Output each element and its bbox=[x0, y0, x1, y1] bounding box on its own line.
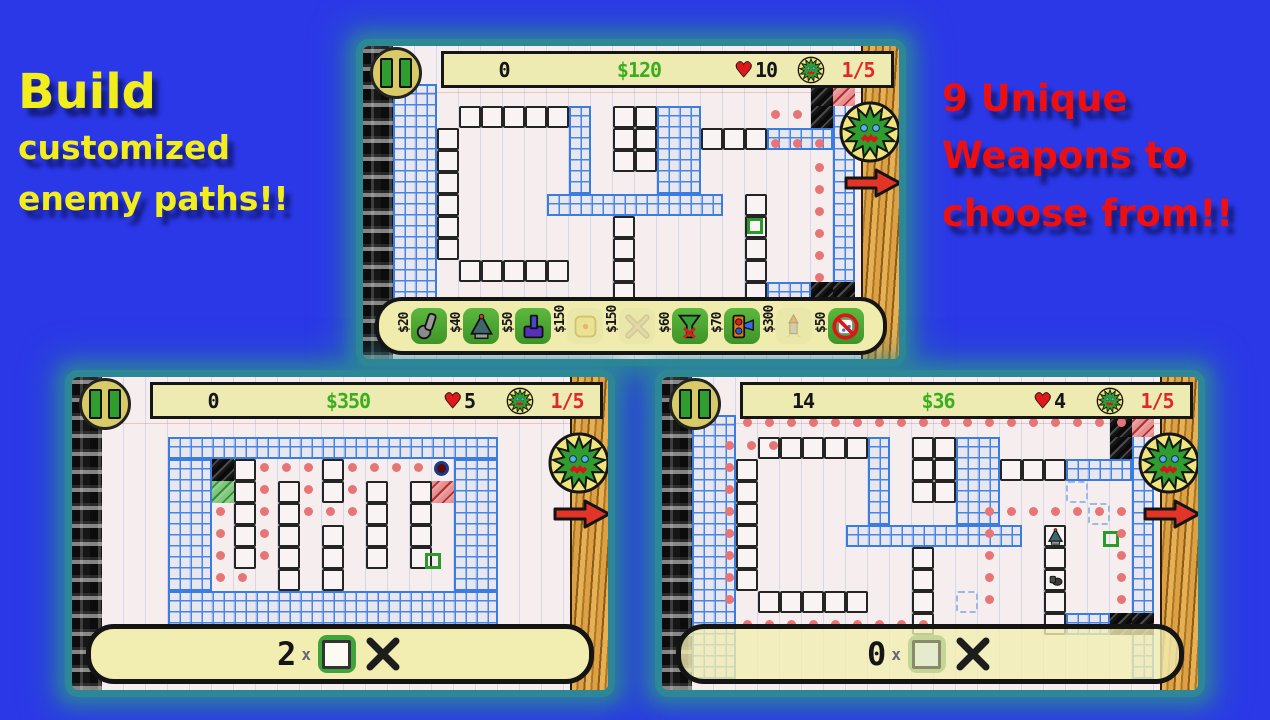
wall-block-icon bbox=[322, 640, 351, 669]
hud-bar: 14 $36 ♥ 4 1/5 bbox=[740, 382, 1193, 419]
weapon-price: $20 bbox=[397, 320, 412, 333]
enemy-path-dot bbox=[963, 418, 972, 427]
build-grid[interactable] bbox=[393, 84, 863, 303]
cancel-button[interactable] bbox=[363, 634, 403, 674]
enemy-path-dot bbox=[985, 595, 994, 604]
money-value: $350 bbox=[273, 389, 423, 413]
spawn-hatch-cell bbox=[212, 459, 234, 481]
signal-weapon-icon bbox=[724, 308, 760, 344]
enemy-path-dot bbox=[793, 110, 802, 119]
weapon-price: $150 bbox=[605, 320, 620, 333]
pause-bar-icon bbox=[108, 389, 121, 419]
spawn-arrow-icon bbox=[843, 166, 899, 200]
enemy-path-dot bbox=[787, 418, 796, 427]
score-value: 14 bbox=[743, 389, 863, 413]
wall-cell bbox=[613, 238, 635, 260]
enemy-path-dot bbox=[1029, 507, 1038, 516]
wall-cell bbox=[234, 481, 256, 503]
wall-cell bbox=[322, 547, 344, 569]
enemy-path-dot bbox=[1095, 418, 1104, 427]
money-value: $36 bbox=[863, 389, 1013, 413]
virus-icon bbox=[506, 387, 534, 415]
wall-cell bbox=[736, 547, 758, 569]
wall-cell bbox=[701, 128, 723, 150]
wall-cell bbox=[234, 459, 256, 481]
wall-cell bbox=[723, 128, 745, 150]
lives-value: 10 bbox=[755, 58, 797, 82]
enemy-path-dot bbox=[1051, 418, 1060, 427]
game-screenshot-wave-running: 14 $36 ♥ 4 1/5 0 x bbox=[662, 377, 1198, 690]
wall-cell bbox=[802, 437, 824, 459]
weapon-price: $150 bbox=[553, 320, 568, 333]
enemy-path-dot bbox=[809, 418, 818, 427]
promo-left-line1: Build bbox=[18, 62, 289, 122]
enemy-path-dot bbox=[348, 485, 357, 494]
spawn-hatch-cell bbox=[811, 106, 833, 128]
wall-cell bbox=[322, 525, 344, 547]
weapon-price: $50 bbox=[814, 320, 829, 333]
wall-cell bbox=[613, 128, 635, 150]
pause-bar-icon bbox=[399, 58, 412, 88]
wall-cell bbox=[234, 525, 256, 547]
heart-icon: ♥ bbox=[446, 389, 459, 413]
buildable-grid bbox=[1066, 459, 1132, 481]
cone-weapon-icon bbox=[463, 308, 499, 344]
enemy-path-dot bbox=[216, 507, 225, 516]
buildable-grid bbox=[393, 84, 437, 303]
wall-cell bbox=[322, 569, 344, 591]
wall-cell bbox=[234, 547, 256, 569]
weapon-slot-6[interactable]: $60 bbox=[659, 308, 708, 344]
wall-cell bbox=[278, 481, 300, 503]
enemy-path-dot bbox=[238, 573, 247, 582]
game-screenshot-build-mode: 0 $120 ♥ 10 1/5 $20$40$50$150$150$60$70$… bbox=[363, 46, 899, 359]
enemy-path-dot bbox=[260, 551, 269, 560]
enemy-path-dot bbox=[985, 529, 994, 538]
weapon-slot-2[interactable]: $40 bbox=[450, 308, 499, 344]
wall-cell bbox=[635, 106, 657, 128]
wall-cell bbox=[366, 547, 388, 569]
spawn-arrow-icon bbox=[552, 497, 608, 531]
wall-cell bbox=[613, 216, 635, 238]
wall-cell bbox=[934, 459, 956, 481]
wall-cell bbox=[322, 481, 344, 503]
virus-icon bbox=[1096, 387, 1124, 415]
enemy-path-dot bbox=[1117, 507, 1126, 516]
enemy-path-dot bbox=[282, 463, 291, 472]
wall-cell bbox=[736, 569, 758, 591]
enemy-path-dot bbox=[370, 463, 379, 472]
wall-cell bbox=[278, 503, 300, 525]
block-count-bar: 0 x bbox=[676, 624, 1184, 684]
wall-cell bbox=[736, 525, 758, 547]
enemy-path-dot bbox=[815, 273, 824, 282]
enemy-path-dot bbox=[260, 529, 269, 538]
spawn-arrow-icon bbox=[1142, 497, 1198, 531]
enemy-path-dot bbox=[216, 573, 225, 582]
wall-cell bbox=[745, 128, 767, 150]
buildable-grid bbox=[846, 525, 1022, 547]
wall-cell bbox=[1044, 591, 1066, 613]
wall-cell bbox=[547, 260, 569, 282]
wall-cell bbox=[780, 437, 802, 459]
weapon-price: $70 bbox=[710, 320, 725, 333]
weapons-toolbar: $20$40$50$150$150$60$70$300$50 bbox=[375, 297, 887, 355]
enemy-path-dot bbox=[831, 418, 840, 427]
hud-bar: 0 $350 ♥ 5 1/5 bbox=[150, 382, 603, 419]
enemy-path-dot bbox=[326, 507, 335, 516]
funnel-weapon-icon bbox=[672, 308, 708, 344]
enemy-path-dot bbox=[815, 229, 824, 238]
enemy-path-dot bbox=[897, 418, 906, 427]
wall-cell bbox=[366, 481, 388, 503]
wall-cell bbox=[278, 569, 300, 591]
enemy-path-dot bbox=[1117, 529, 1126, 538]
wall-cell bbox=[802, 591, 824, 613]
enemy-path-dot bbox=[747, 441, 756, 450]
enemy-path-dot bbox=[853, 418, 862, 427]
nosign-weapon-icon bbox=[828, 308, 864, 344]
wall-cell bbox=[525, 260, 547, 282]
buildable-grid bbox=[657, 106, 701, 194]
wall-cell bbox=[410, 481, 432, 503]
wall-cell bbox=[912, 437, 934, 459]
weapon-slot-5[interactable]: $150 bbox=[606, 308, 655, 344]
heart-icon: ♥ bbox=[1036, 389, 1049, 413]
wall-cell bbox=[613, 150, 635, 172]
enemy-virus-badge bbox=[547, 431, 608, 495]
virus-icon bbox=[797, 56, 825, 84]
wall-cell bbox=[736, 503, 758, 525]
wall-cell bbox=[503, 260, 525, 282]
wall-cell bbox=[912, 459, 934, 481]
enemy-path-dot bbox=[1095, 507, 1104, 516]
heart-icon: ♥ bbox=[737, 58, 750, 82]
wall-cell bbox=[322, 459, 344, 481]
pause-bar-icon bbox=[698, 389, 711, 419]
lives-value: 5 bbox=[464, 389, 506, 413]
enemy-path-dot bbox=[985, 507, 994, 516]
enemy-path-dot bbox=[765, 418, 774, 427]
wall-cell bbox=[1044, 459, 1066, 481]
wall-cell bbox=[366, 525, 388, 547]
buildable-grid bbox=[168, 459, 212, 591]
wall-cell bbox=[824, 437, 846, 459]
placement-ghost-cell bbox=[956, 591, 978, 613]
enemy-path-dot bbox=[815, 185, 824, 194]
enemy-path-dot bbox=[815, 207, 824, 216]
enemy-path-dot bbox=[260, 463, 269, 472]
wall-cell bbox=[437, 216, 459, 238]
enemy-path-dot bbox=[875, 418, 884, 427]
enemy-path-dot bbox=[985, 573, 994, 582]
enemy-path-dot bbox=[1007, 418, 1016, 427]
weapon-slot-3[interactable]: $50 bbox=[502, 308, 551, 344]
promo-right-line2: Weapons to bbox=[942, 127, 1233, 184]
cone-tower-icon bbox=[1044, 525, 1066, 547]
weapon-slot-7[interactable]: $70 bbox=[711, 308, 760, 344]
exit-hatch-cell bbox=[432, 481, 454, 503]
buildable-grid bbox=[547, 194, 723, 216]
enemy-path-dot bbox=[1117, 551, 1126, 560]
promo-right-line3: choose from!! bbox=[942, 185, 1233, 242]
wall-cell bbox=[934, 481, 956, 503]
promo-text-right: 9 Unique Weapons to choose from!! bbox=[942, 70, 1233, 242]
promo-right-line1: 9 Unique bbox=[942, 70, 1233, 127]
enemy-path-dot bbox=[304, 485, 313, 494]
xtrap-weapon-icon bbox=[619, 308, 655, 344]
wall-cell bbox=[437, 194, 459, 216]
enemy-path-dot bbox=[919, 418, 928, 427]
cancel-button[interactable] bbox=[953, 634, 993, 674]
wall-cell bbox=[780, 591, 802, 613]
buildable-grid bbox=[569, 106, 591, 194]
enemy-path-dot bbox=[414, 463, 423, 472]
wall-cell bbox=[437, 128, 459, 150]
wall-cell bbox=[278, 525, 300, 547]
pause-button[interactable] bbox=[669, 378, 721, 430]
club-weapon-icon bbox=[411, 308, 447, 344]
start-hatch-cell bbox=[212, 481, 234, 503]
money-value: $120 bbox=[564, 58, 714, 82]
enemy-virus-badge bbox=[838, 100, 899, 164]
enemy-path-dot bbox=[260, 485, 269, 494]
wall-cell bbox=[481, 260, 503, 282]
wall-cell bbox=[437, 172, 459, 194]
wall-cell bbox=[934, 437, 956, 459]
enemy-path-dot bbox=[304, 507, 313, 516]
wall-cell bbox=[824, 591, 846, 613]
wall-cell bbox=[635, 150, 657, 172]
weapon-slot-9[interactable]: $50 bbox=[815, 308, 864, 344]
weapon-slot-1[interactable]: $20 bbox=[398, 308, 447, 344]
cannon-weapon-icon bbox=[515, 308, 551, 344]
knight-tower-icon bbox=[1044, 569, 1066, 591]
wall-cell bbox=[547, 106, 569, 128]
promo-left-line3: enemy paths!! bbox=[18, 173, 289, 224]
enemy-path-dot bbox=[815, 251, 824, 260]
hud-bar: 0 $120 ♥ 10 1/5 bbox=[441, 51, 894, 88]
wave-value: 1/5 bbox=[825, 58, 891, 82]
wall-cell bbox=[503, 106, 525, 128]
wall-cell bbox=[278, 547, 300, 569]
weapon-price: $50 bbox=[501, 320, 516, 333]
enemy-path-dot bbox=[348, 463, 357, 472]
enemy-path-dot bbox=[985, 418, 994, 427]
enemy-path-dot bbox=[743, 418, 752, 427]
wall-cell bbox=[745, 194, 767, 216]
wall-cell bbox=[1000, 459, 1022, 481]
wall-cell bbox=[736, 481, 758, 503]
wall-cell bbox=[459, 260, 481, 282]
pad-weapon-icon bbox=[567, 308, 603, 344]
pause-bar-icon bbox=[89, 389, 102, 419]
enemy-path-dot bbox=[941, 418, 950, 427]
enemy-path-dot bbox=[771, 110, 780, 119]
buildable-grid bbox=[868, 437, 890, 525]
pause-bar-icon bbox=[679, 389, 692, 419]
wall-cell bbox=[912, 591, 934, 613]
pause-button[interactable] bbox=[370, 47, 422, 99]
score-value: 0 bbox=[153, 389, 273, 413]
wall-cell bbox=[366, 503, 388, 525]
wall-cell bbox=[846, 437, 868, 459]
enemy-path-dot bbox=[985, 551, 994, 560]
wall-cell bbox=[437, 238, 459, 260]
wall-block-tile[interactable] bbox=[318, 635, 356, 673]
wall-cell bbox=[437, 150, 459, 172]
enemy-path-dot bbox=[1051, 507, 1060, 516]
lives-value: 4 bbox=[1054, 389, 1096, 413]
enemy-path-dot bbox=[260, 507, 269, 516]
wall-cell bbox=[1022, 459, 1044, 481]
wave-value: 1/5 bbox=[1124, 389, 1190, 413]
wall-cell bbox=[613, 106, 635, 128]
wall-block-icon bbox=[912, 640, 941, 669]
wall-cell bbox=[745, 260, 767, 282]
wall-cell bbox=[758, 591, 780, 613]
wall-cell bbox=[912, 481, 934, 503]
wall-cell bbox=[912, 569, 934, 591]
enemy-path-dot bbox=[1073, 507, 1082, 516]
score-value: 0 bbox=[444, 58, 564, 82]
pause-bar-icon bbox=[380, 58, 393, 88]
enemy-path-dot bbox=[1117, 595, 1126, 604]
wall-cell bbox=[459, 106, 481, 128]
enemy-path-dot bbox=[1007, 507, 1016, 516]
game-screenshot-path-editor: 0 $350 ♥ 5 1/5 2 x bbox=[72, 377, 608, 690]
wall-cell bbox=[635, 128, 657, 150]
weapon-slot-4[interactable]: $150 bbox=[554, 308, 603, 344]
times-label: x bbox=[891, 645, 901, 664]
weapon-price: $300 bbox=[762, 320, 777, 333]
wave-value: 1/5 bbox=[534, 389, 600, 413]
wall-cell bbox=[846, 591, 868, 613]
pause-button[interactable] bbox=[79, 378, 131, 430]
enemy-virus-badge bbox=[1137, 431, 1198, 495]
buildable-grid bbox=[168, 437, 498, 459]
promo-text-left: Build customized enemy paths!! bbox=[18, 62, 289, 224]
rocket-weapon-icon bbox=[776, 308, 812, 344]
wall-cell bbox=[1044, 547, 1066, 569]
wall-cell bbox=[410, 503, 432, 525]
enemy-path-dot bbox=[815, 163, 824, 172]
promo-canvas: Build customized enemy paths!! 9 Unique … bbox=[0, 0, 1270, 720]
wall-cell bbox=[481, 106, 503, 128]
wall-cell bbox=[912, 547, 934, 569]
enemy-path-dot bbox=[1117, 573, 1126, 582]
enemy-path-dot bbox=[1029, 418, 1038, 427]
spawn-hatch-cell bbox=[1110, 437, 1132, 459]
placement-ghost-cell bbox=[1066, 481, 1088, 503]
promo-left-line2: customized bbox=[18, 122, 289, 173]
enemy-path-dot bbox=[1073, 418, 1082, 427]
weapon-slot-8[interactable]: $300 bbox=[763, 308, 812, 344]
wall-block-tile[interactable] bbox=[908, 635, 946, 673]
times-label: x bbox=[301, 645, 311, 664]
wall-cell bbox=[745, 238, 767, 260]
cursor-square bbox=[747, 218, 763, 234]
wall-cell bbox=[234, 503, 256, 525]
enemy-path-dot bbox=[216, 529, 225, 538]
block-count-bar: 2 x bbox=[86, 624, 594, 684]
wall-cell bbox=[736, 459, 758, 481]
weapon-price: $40 bbox=[449, 320, 464, 333]
wall-cell bbox=[525, 106, 547, 128]
enemy-path-dot bbox=[1117, 418, 1126, 427]
enemy-path-dot bbox=[348, 507, 357, 516]
block-count-value: 2 bbox=[277, 635, 294, 673]
wall-cell bbox=[613, 260, 635, 282]
enemy-path-dot bbox=[392, 463, 401, 472]
cursor-square bbox=[425, 553, 441, 569]
buildable-grid bbox=[454, 459, 498, 591]
wall-cell bbox=[410, 525, 432, 547]
enemy-path-dot bbox=[216, 551, 225, 560]
weapon-price: $60 bbox=[658, 320, 673, 333]
block-count-value: 0 bbox=[867, 635, 884, 673]
enemy-path-dot bbox=[304, 463, 313, 472]
path-end-marker bbox=[434, 461, 449, 476]
